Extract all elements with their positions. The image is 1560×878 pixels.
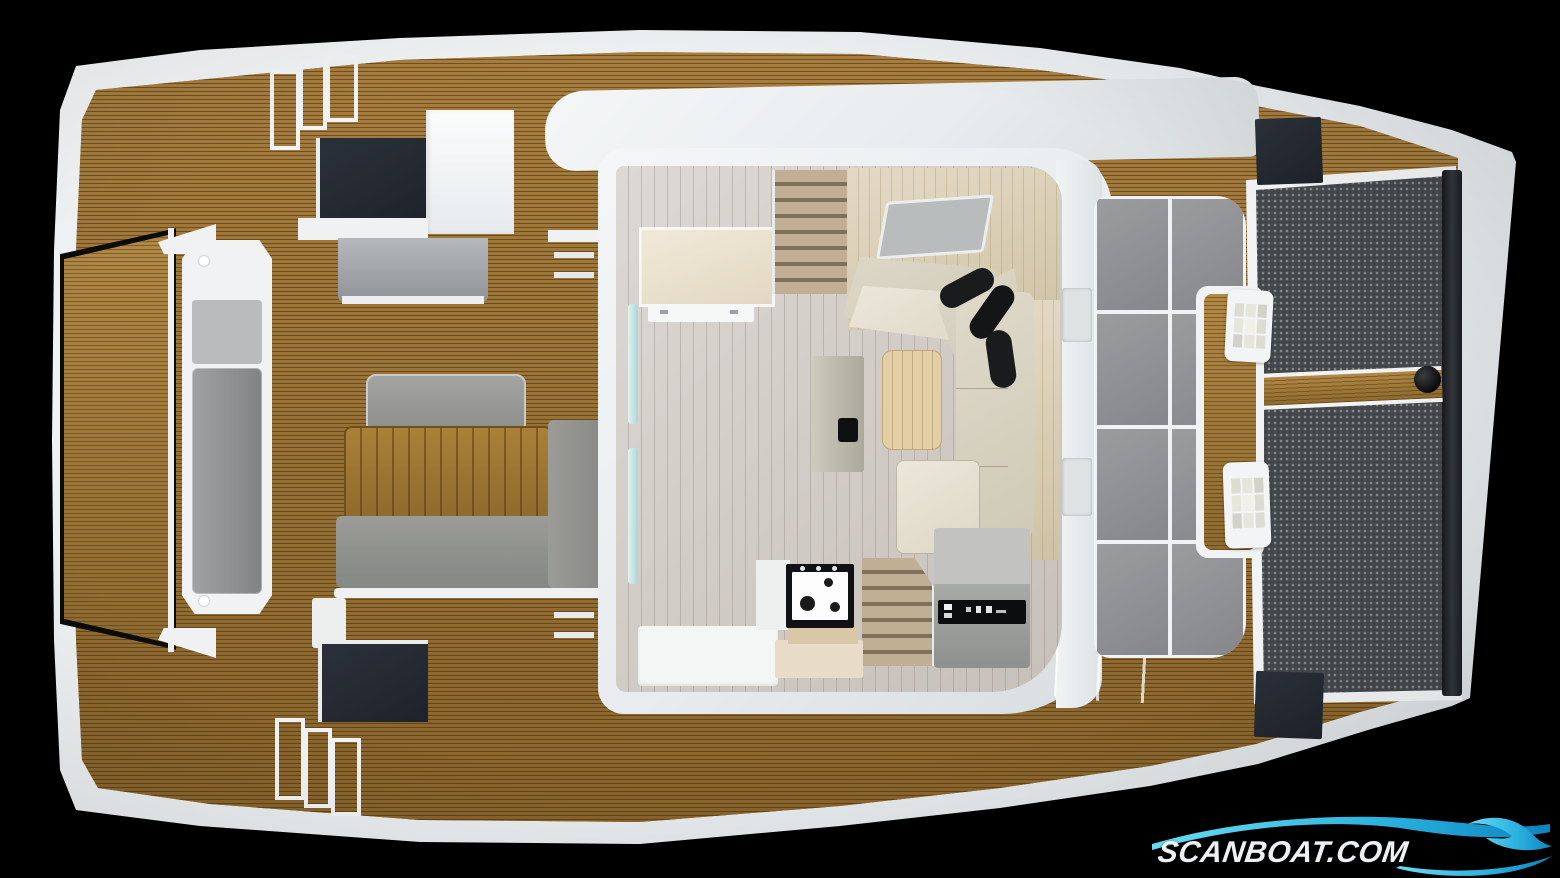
davit-rail-bottom-1 <box>275 718 305 800</box>
sidedeck-tread-bottom-2 <box>554 632 594 638</box>
cockpit-hatch-port <box>316 138 430 224</box>
davit-rail-bottom-2 <box>304 728 332 808</box>
aft-bench-backrest <box>192 300 262 364</box>
galley-fwd-counter <box>638 626 778 686</box>
sidedeck-tread-top-1 <box>554 252 594 258</box>
companionway-steps-port <box>772 170 847 294</box>
door-glass-track-aft <box>628 304 638 424</box>
coffee-table <box>882 350 942 450</box>
davit-rail-top-1 <box>270 70 300 150</box>
galley-counter-wood <box>788 626 858 644</box>
aft-bench-cushion <box>192 368 262 594</box>
davit-rail-bottom-3 <box>331 738 361 816</box>
davit-rail-top-3 <box>326 54 358 122</box>
cockpit-hatch-starboard <box>318 640 428 722</box>
cockpit-seat-front <box>338 238 488 302</box>
control-icon-5 <box>986 606 992 613</box>
scanboat-watermark: SCANBOAT.COM <box>1150 810 1554 876</box>
logo-wave-under <box>1396 856 1552 876</box>
anchor-roller-ball <box>1414 366 1441 393</box>
control-icon-2 <box>944 613 952 618</box>
aft-bench-cupholder-bottom <box>199 596 209 606</box>
galley-shelf-handle-1 <box>660 310 668 314</box>
door-glass-track-fwd <box>628 448 638 584</box>
control-icon-1 <box>944 604 952 610</box>
aft-bench-cupholder-top <box>199 256 209 266</box>
stove-burner-large <box>800 596 815 611</box>
davit-rail-top-2 <box>299 60 327 130</box>
cockpit-table <box>344 426 552 522</box>
sidedeck-tread-bottom-1 <box>554 612 594 618</box>
cockpit-wetbar-cabinet <box>426 110 514 234</box>
bow-hatch-grid-top <box>1233 303 1267 349</box>
control-icon-6 <box>996 610 1006 613</box>
stove-knob-2 <box>816 566 821 571</box>
control-icon-4 <box>976 606 981 613</box>
sidedeck-tread-top-2 <box>554 272 594 278</box>
bulkhead-locker-top <box>1062 288 1092 342</box>
stove-burner-small-1 <box>824 578 833 587</box>
catamaran-deck-plan: SCANBOAT.COM <box>0 0 1560 878</box>
sunpad-cell <box>1172 544 1243 655</box>
cockpit-seatback <box>366 374 526 434</box>
foredeck-hatch-port <box>1255 117 1323 185</box>
island-sink <box>838 418 858 442</box>
cockpit-seat-lip <box>342 296 484 304</box>
watermark-text: SCANBOAT.COM <box>1156 836 1411 870</box>
bow-hatch-grid-bottom <box>1231 477 1265 528</box>
stove-knob-1 <box>800 566 805 571</box>
sunpad-cell <box>1097 314 1168 425</box>
companionway-steps-starboard <box>862 558 935 666</box>
cockpit-bench-top <box>298 218 428 240</box>
bow-crossbeam <box>1442 170 1462 696</box>
nav-desk-panel <box>876 194 994 259</box>
galley-tall-cabinet <box>934 528 1030 668</box>
stove-burner-small-2 <box>830 602 840 612</box>
galley-lower-cabinet <box>775 640 863 678</box>
bulkhead-locker-bottom <box>1062 458 1092 516</box>
galley-aft-counter <box>642 230 772 304</box>
stove-knob-3 <box>832 566 837 571</box>
stove-top <box>792 572 848 620</box>
sunpad-cell <box>1097 429 1168 540</box>
sunpad-cell <box>1097 544 1168 655</box>
cockpit-l-bench-lip <box>334 588 626 598</box>
control-icon-3 <box>966 607 971 612</box>
galley-shelf-handle-2 <box>730 310 738 314</box>
foredeck-hatch-starboard <box>1254 671 1324 739</box>
galley-island <box>812 356 864 472</box>
sunpad-cell <box>1097 199 1168 310</box>
swim-platform <box>64 230 172 648</box>
swim-platform-edge <box>168 228 174 652</box>
galley-fwd-side <box>756 560 790 630</box>
